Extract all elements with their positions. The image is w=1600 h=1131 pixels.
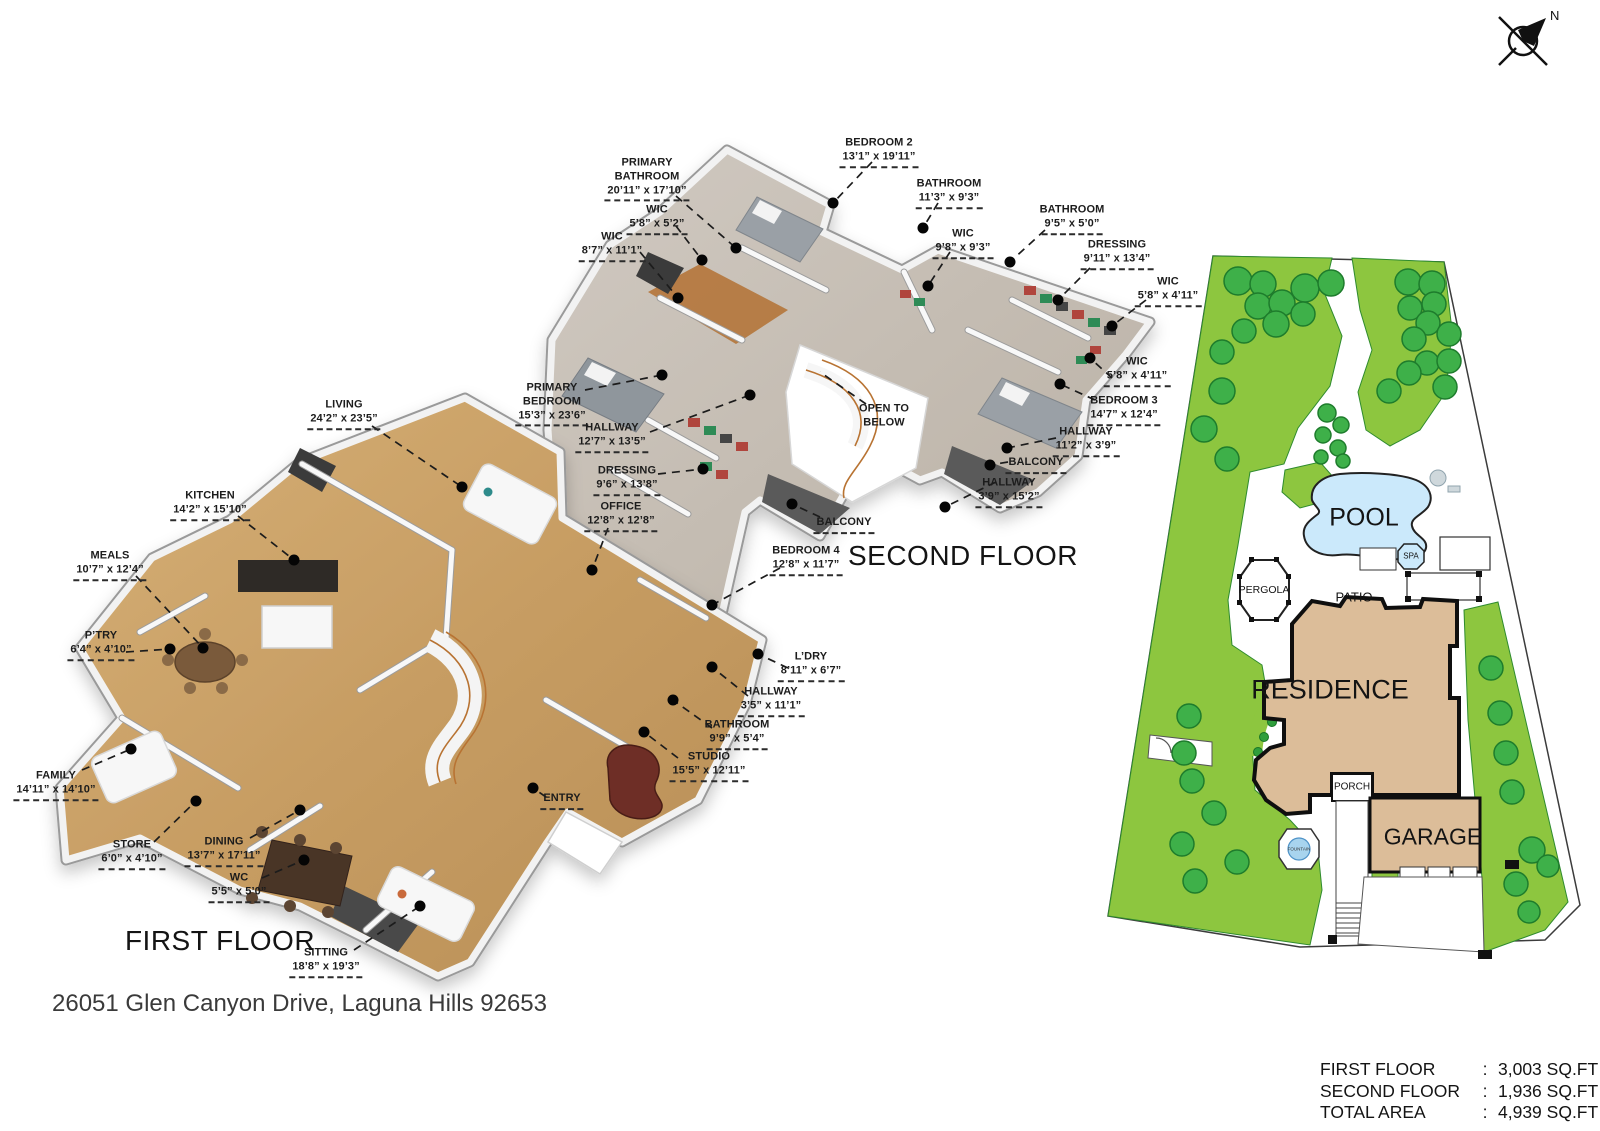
driveway: [1358, 877, 1484, 952]
sf-label-primary-bedroom: PRIMARY BEDROOM15’3” x 23’6”: [515, 381, 588, 426]
area-row-total: TOTAL AREA:4,939 SQ.FT: [1320, 1102, 1600, 1124]
sf-label-dressing-1: DRESSING9’11” x 13’4”: [1081, 238, 1154, 270]
site-label-pool: POOL: [1329, 504, 1398, 533]
sf-label-bathroom-1: BATHROOM11’3” x 9’3”: [916, 177, 983, 209]
property-address: 26051 Glen Canyon Drive, Laguna Hills 92…: [52, 990, 547, 1018]
sf-label-open-to-below: OPEN TO BELOW: [859, 402, 909, 430]
compass-icon: N: [1499, 8, 1559, 65]
site-label-patio: PATIO: [1335, 590, 1372, 605]
compass-north-label: N: [1550, 8, 1559, 23]
site-plan: [1108, 256, 1580, 959]
ff-label-bathroom: BATHROOM9’9” x 5’4”: [705, 718, 770, 750]
area-row-first-floor: FIRST FLOOR:3,003 SQ.FT: [1320, 1059, 1600, 1081]
ff-label-laundry: L’DRY8’11” x 6’7”: [778, 650, 845, 682]
ff-label-hallway: HALLWAY3’5” x 11’1”: [738, 685, 805, 717]
site-label-porch: PORCH: [1334, 782, 1370, 793]
site-label-residence: RESIDENCE: [1251, 675, 1409, 706]
sf-label-hallway-2: HALLWAY11’2” x 3’9”: [1053, 425, 1120, 457]
sf-label-wic-4: WIC5’8” x 4’11”: [1135, 275, 1202, 307]
floorplan-sheet: N PRIMARY BATHROOM20’11” x 17’10” WIC5’8…: [0, 0, 1600, 1131]
sf-label-hallway-3: HALLWAY3’9” x 15’2”: [975, 476, 1042, 508]
site-label-garage: GARAGE: [1384, 824, 1482, 851]
ff-label-kitchen: KITCHEN14’2” x 15’10”: [170, 489, 250, 521]
sf-label-office: OFFICE12’8” x 12’8”: [584, 500, 657, 532]
ff-label-entry: ENTRY: [540, 792, 583, 810]
site-label-fountain: FOUNTAIN: [1288, 847, 1311, 852]
sf-label-balcony-left: BALCONY: [813, 516, 874, 534]
sf-label-primary-bathroom: PRIMARY BATHROOM20’11” x 17’10”: [604, 156, 689, 201]
ff-label-store: STORE6’0” x 4’10”: [98, 838, 165, 870]
ff-label-family: FAMILY14’11” x 14’10”: [13, 769, 98, 801]
sf-label-bedroom-3: BEDROOM 314’7” x 12’4”: [1087, 394, 1160, 426]
ff-label-living: LIVING24’2” x 23’5”: [307, 398, 380, 430]
ff-label-dining: DINING13’7” x 17’11”: [185, 835, 264, 867]
sf-label-bedroom-4: BEDROOM 412’8” x 11’7”: [770, 544, 843, 576]
sf-label-balcony-right: BALCONY: [1005, 456, 1066, 474]
sf-label-bedroom-2: BEDROOM 213’1” x 19’11”: [840, 136, 919, 168]
sf-label-bathroom-2: BATHROOM9’5” x 5’0”: [1040, 203, 1105, 235]
sf-label-dressing-2: DRESSING9’6” x 13’8”: [593, 464, 660, 496]
area-summary-table: FIRST FLOOR:3,003 SQ.FT SECOND FLOOR:1,9…: [1320, 1059, 1600, 1124]
ff-label-meals: MEALS10’7” x 12’4”: [73, 549, 146, 581]
first-floor-title: FIRST FLOOR: [125, 925, 315, 957]
second-floor-title: SECOND FLOOR: [848, 540, 1078, 572]
area-row-second-floor: SECOND FLOOR:1,936 SQ.FT: [1320, 1081, 1600, 1103]
site-label-spa: SPA: [1403, 552, 1418, 561]
sf-label-wic-3: WIC9’8” x 9’3”: [933, 227, 994, 259]
ff-label-wc: WC5’5” x 5’0”: [209, 871, 270, 903]
sf-label-wic-5: WIC5’8” x 4’11”: [1104, 355, 1171, 387]
sf-label-hallway-1: HALLWAY12’7” x 13’5”: [575, 421, 648, 453]
ff-label-pantry: P’TRY6’4” x 4’10”: [67, 629, 134, 661]
sf-label-wic-2: WIC8’7” x 11’1”: [579, 230, 646, 262]
site-label-pergola: PERGOLA: [1239, 584, 1290, 596]
ff-label-studio: STUDIO15’5” x 12’11”: [670, 750, 749, 782]
